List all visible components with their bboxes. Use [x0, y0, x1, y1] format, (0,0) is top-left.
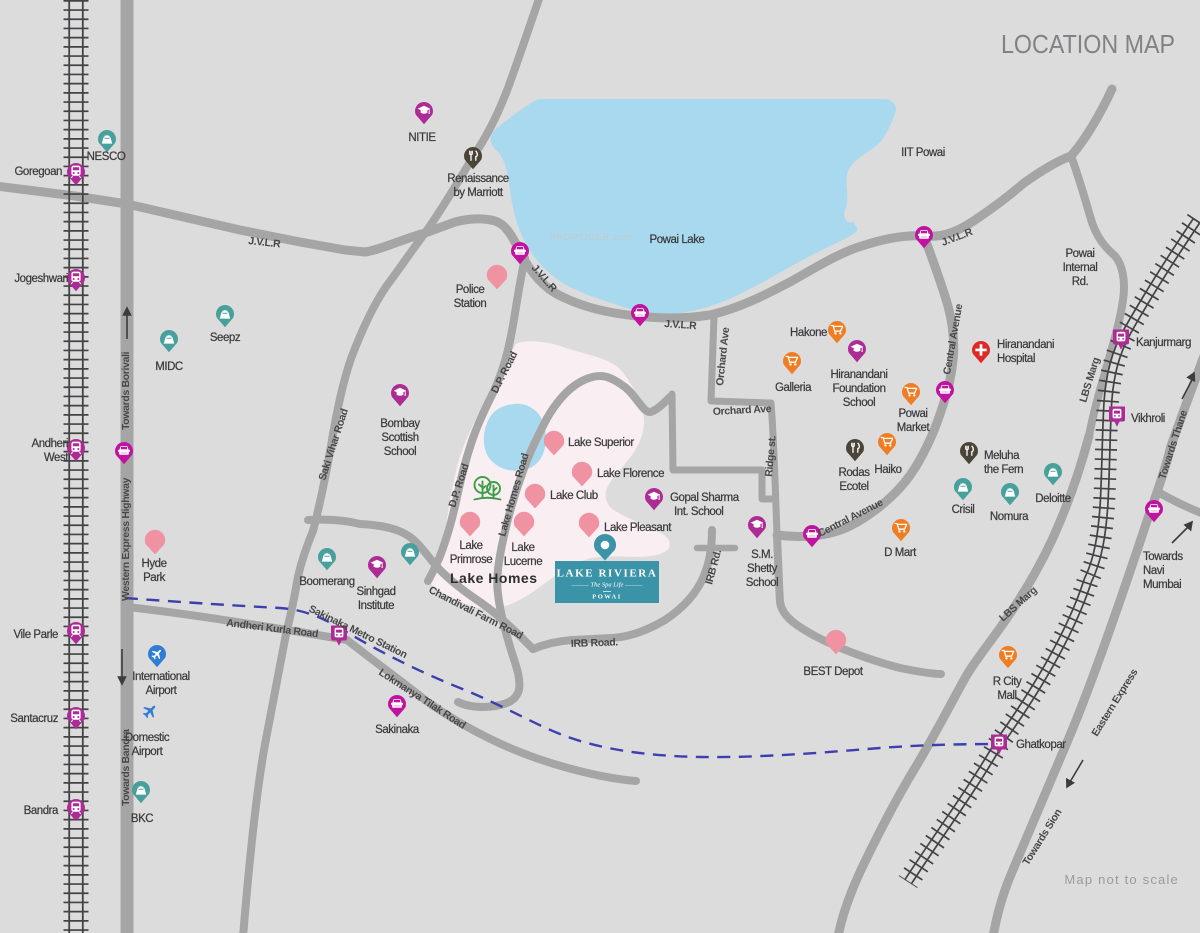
svg-text:Powai Lake: Powai Lake — [650, 234, 705, 246]
svg-text:Towards Borivali: Towards Borivali — [120, 351, 132, 430]
svg-text:Powai: Powai — [1065, 248, 1094, 260]
svg-text:LAKE RIVIERA: LAKE RIVIERA — [557, 568, 658, 580]
svg-text:by Marriott: by Marriott — [453, 187, 504, 199]
svg-text:Lake Florence: Lake Florence — [597, 468, 664, 480]
svg-text:Powai: Powai — [898, 408, 927, 420]
svg-text:IIT Powai: IIT Powai — [901, 147, 945, 159]
svg-text:Vikhroli: Vikhroli — [1131, 413, 1165, 425]
svg-text:Western Express Highway: Western Express Highway — [120, 477, 132, 601]
svg-text:Institute: Institute — [358, 600, 394, 612]
svg-text:Scottish: Scottish — [381, 432, 418, 444]
svg-text:Lake Club: Lake Club — [550, 490, 598, 502]
svg-text:PROPTIGER.com: PROPTIGER.com — [549, 232, 632, 243]
svg-text:West: West — [44, 452, 69, 464]
svg-text:the Fern: the Fern — [984, 464, 1023, 476]
svg-text:School: School — [746, 577, 778, 589]
svg-text:International: International — [132, 671, 189, 683]
svg-text:IRB Road.: IRB Road. — [571, 636, 619, 650]
svg-text:School: School — [843, 397, 875, 409]
svg-text:Jogeshwari: Jogeshwari — [14, 273, 68, 285]
svg-text:Sinhgad: Sinhgad — [356, 586, 395, 598]
svg-text:Mall: Mall — [997, 690, 1016, 702]
svg-text:Goregoan: Goregoan — [14, 166, 62, 178]
svg-text:Bombay: Bombay — [380, 418, 420, 430]
svg-text:Vile Parle: Vile Parle — [13, 629, 58, 641]
svg-text:Market: Market — [897, 422, 931, 434]
svg-text:J.V.L.R: J.V.L.R — [664, 318, 698, 332]
svg-text:MIDC: MIDC — [155, 361, 183, 373]
svg-text:Gopal Sharma: Gopal Sharma — [670, 492, 740, 504]
svg-text:Towards: Towards — [1143, 551, 1183, 563]
svg-text:Lucerne: Lucerne — [504, 556, 542, 568]
svg-text:Andheri: Andheri — [32, 438, 69, 450]
svg-text:Santacruz: Santacruz — [10, 713, 58, 725]
svg-text:Ghatkopar: Ghatkopar — [1016, 739, 1066, 751]
svg-text:Seepz: Seepz — [210, 332, 241, 344]
svg-text:BKC: BKC — [131, 813, 153, 825]
svg-text:Lake: Lake — [511, 542, 534, 554]
svg-text:Deloitte: Deloitte — [1035, 493, 1070, 505]
svg-text:Lake Superior: Lake Superior — [568, 437, 634, 449]
svg-text:Renaissance: Renaissance — [447, 173, 509, 185]
svg-text:Navi: Navi — [1143, 565, 1164, 577]
svg-text:Galleria: Galleria — [775, 382, 812, 394]
svg-text:Rd.: Rd. — [1072, 276, 1089, 288]
svg-text:Hospital: Hospital — [997, 353, 1035, 365]
svg-text:Bandra: Bandra — [24, 805, 59, 817]
svg-text:Towards Bandra: Towards Bandra — [120, 729, 132, 806]
svg-text:Police: Police — [456, 284, 485, 296]
svg-text:Primrose: Primrose — [450, 554, 492, 566]
svg-text:Nomura: Nomura — [990, 511, 1029, 523]
svg-text:Hakone: Hakone — [790, 327, 827, 339]
svg-text:BEST Depot: BEST Depot — [803, 666, 863, 678]
svg-text:Lake: Lake — [459, 540, 482, 552]
svg-text:——— The Spa Life ———: ——— The Spa Life ——— — [571, 582, 643, 589]
svg-text:Rodas: Rodas — [839, 467, 871, 479]
svg-text:Crisil: Crisil — [952, 504, 975, 516]
svg-text:Haiko: Haiko — [874, 464, 901, 476]
svg-text:Hyde: Hyde — [141, 558, 166, 570]
svg-text:Lake Pleasant: Lake Pleasant — [604, 522, 672, 534]
svg-text:Mumbai: Mumbai — [1143, 579, 1181, 591]
svg-text:Lake Homes: Lake Homes — [450, 570, 537, 586]
svg-text:Boomerang: Boomerang — [299, 576, 354, 588]
svg-text:Airport: Airport — [146, 685, 178, 697]
svg-text:NESCO: NESCO — [87, 151, 126, 163]
svg-text:Ecotel: Ecotel — [839, 481, 868, 493]
svg-text:Hiranandani: Hiranandani — [830, 369, 887, 381]
svg-text:Foundation: Foundation — [832, 383, 885, 395]
svg-text:Sakinaka: Sakinaka — [375, 724, 420, 736]
svg-text:Airport: Airport — [132, 746, 164, 758]
svg-text:Internal: Internal — [1063, 262, 1098, 274]
svg-text:Station: Station — [454, 298, 487, 310]
svg-text:Kanjurmarg: Kanjurmarg — [1136, 337, 1191, 349]
svg-text:S.M.: S.M. — [751, 549, 773, 561]
svg-text:Hiranandani: Hiranandani — [997, 339, 1054, 351]
svg-text:School: School — [384, 446, 416, 458]
svg-text:D Mart: D Mart — [884, 547, 917, 559]
svg-text:Map not to scale: Map not to scale — [1064, 872, 1179, 887]
svg-text:R City: R City — [993, 676, 1022, 688]
svg-text:NITIE: NITIE — [408, 132, 436, 144]
svg-text:Meluha: Meluha — [984, 450, 1020, 462]
svg-text:Shetty: Shetty — [747, 563, 778, 575]
svg-text:POWAI: POWAI — [592, 594, 622, 601]
svg-text:Int. School: Int. School — [674, 506, 723, 518]
svg-text:LOCATION MAP: LOCATION MAP — [1001, 29, 1175, 59]
svg-text:Park: Park — [143, 572, 166, 584]
